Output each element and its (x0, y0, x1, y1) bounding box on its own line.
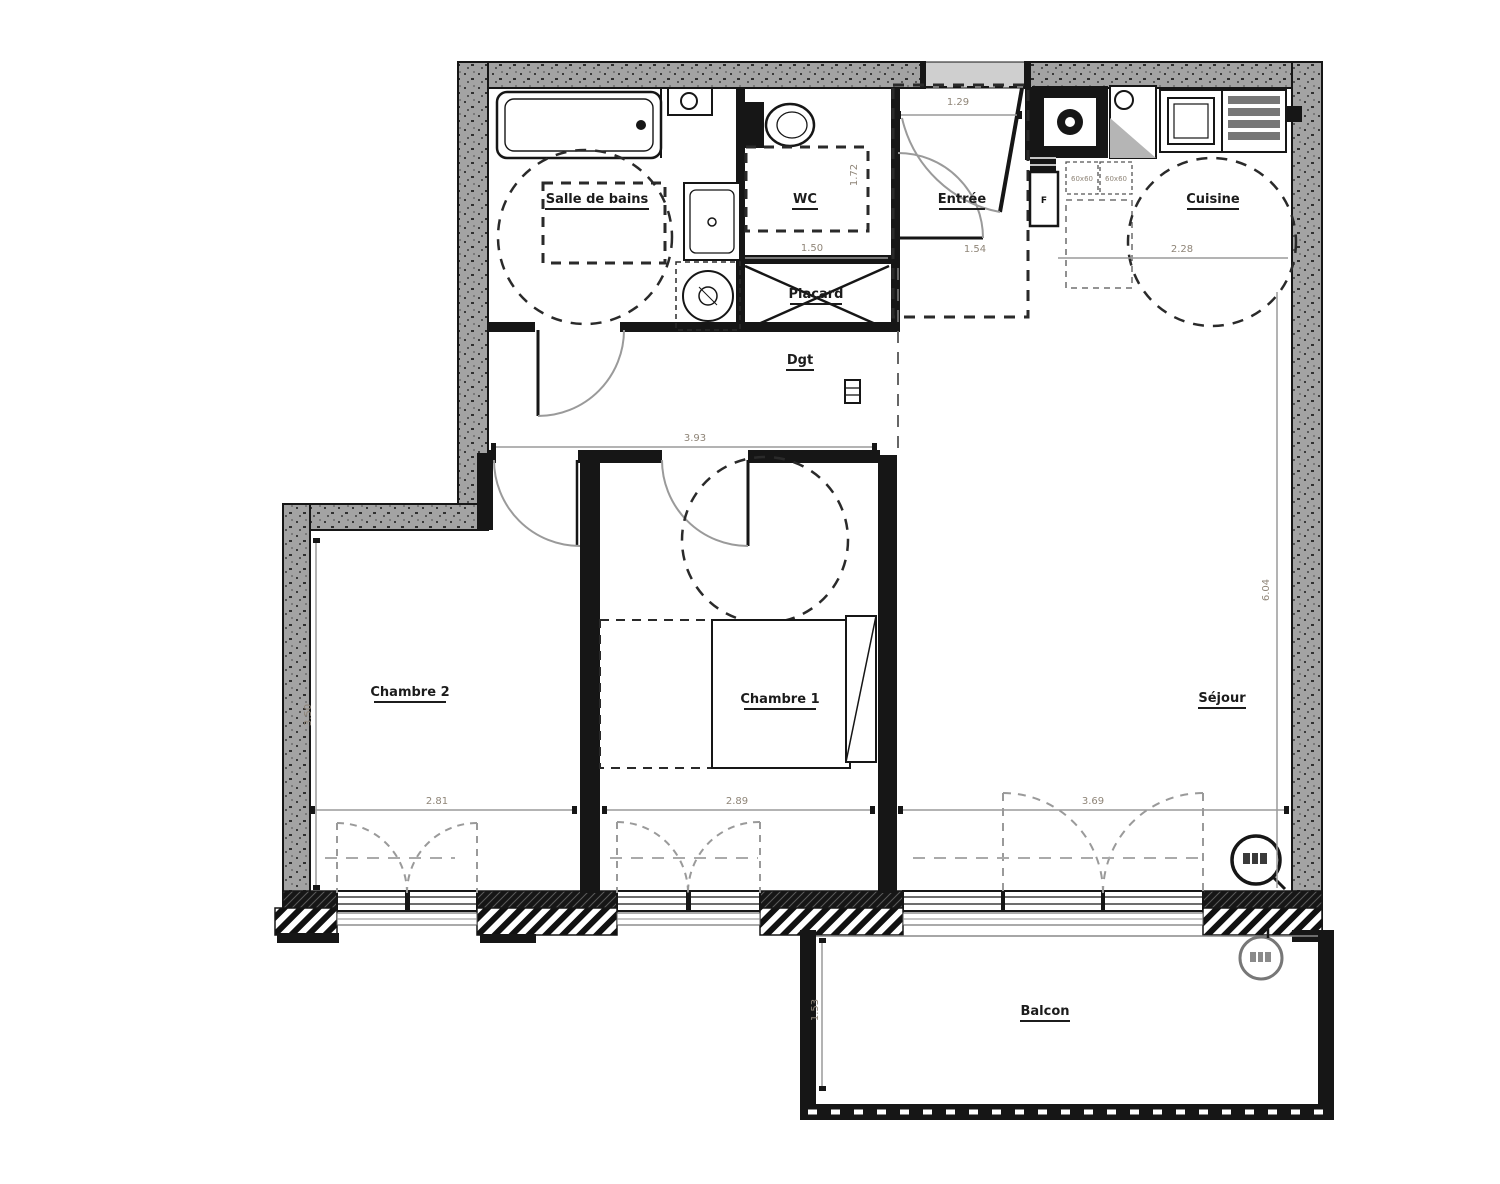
appliance-size-2: 60x60 (1105, 175, 1127, 183)
page-background (0, 0, 1500, 1184)
label-wc: WC (793, 192, 817, 207)
footing-1 (277, 933, 339, 943)
dim-entrance-clearance: 1.29 (947, 97, 969, 108)
dim-chambre2-depth: 3.50 (303, 704, 314, 726)
hood-icon (1110, 86, 1156, 158)
label-chambre-2: Chambre 2 (370, 685, 449, 700)
wall-wc-placard (742, 255, 899, 264)
label-entree: Entrée (938, 192, 987, 207)
wall-left-connector (477, 453, 493, 530)
dim-sejour-width: 3.69 (1082, 796, 1104, 807)
window-chambre2 (337, 891, 477, 911)
dim-sejour-depth: 6.04 (1261, 579, 1272, 601)
label-cuisine: Cuisine (1186, 192, 1240, 207)
wall-chambre1-sejour (878, 455, 897, 893)
label-salle-de-bains: Salle de bains (546, 192, 649, 207)
kitchen-sink-icon (1160, 90, 1286, 152)
dim-chambre2-width: 2.81 (426, 796, 448, 807)
wall-dgt-3 (600, 450, 662, 463)
floor-plan-drawing: F 60x60 60x60 (0, 0, 1500, 1184)
floor-plan-page: F 60x60 60x60 (0, 0, 1500, 1184)
radiator-icon (845, 380, 860, 403)
appliance-size-1: 60x60 (1071, 175, 1093, 183)
wall-dgt-4 (748, 450, 880, 463)
fridge-icon: F (1030, 152, 1058, 226)
label-balcon: Balcon (1020, 1004, 1069, 1019)
window-sejour (903, 891, 1203, 911)
wall-step (283, 504, 488, 530)
dim-cuisine-width: 2.28 (1171, 244, 1193, 255)
door-jamb-right (1025, 62, 1031, 88)
fridge-label: F (1041, 196, 1047, 206)
hatch-band-3 (760, 908, 903, 935)
hatch-band-2 (477, 908, 617, 935)
dim-wc-depth: 1.72 (849, 164, 860, 186)
window-chambre1 (617, 891, 760, 911)
wall-top-right (1025, 62, 1322, 88)
stove-icon (1032, 86, 1108, 158)
label-sejour: Séjour (1198, 691, 1246, 706)
dim-chambre1-width: 2.89 (726, 796, 748, 807)
washbasin-icon (684, 183, 740, 260)
label-chambre-1: Chambre 1 (740, 692, 819, 707)
toilet-icon (744, 102, 814, 148)
dim-wc-width: 1.50 (801, 243, 823, 254)
cabinet-icon (668, 88, 712, 115)
dim-dgt-length: 3.93 (684, 433, 706, 444)
footing-2 (480, 934, 536, 943)
bathtub-icon (497, 92, 661, 158)
desk-icon (846, 616, 876, 762)
hatch-band-1 (275, 908, 337, 935)
dim-entree-width: 1.54 (964, 244, 986, 255)
wall-right (1292, 62, 1322, 930)
label-dgt: Dgt (787, 353, 813, 368)
balcony-rail-right (1318, 930, 1334, 1120)
label-placard: Placard (789, 287, 844, 302)
dim-balcon-depth: 1.53 (810, 999, 821, 1021)
wall-sdb-bottom-left (488, 322, 535, 332)
wall-top-left (458, 62, 925, 88)
wall-chambre-divider (580, 457, 600, 893)
balcony-rail-left (800, 930, 816, 1120)
